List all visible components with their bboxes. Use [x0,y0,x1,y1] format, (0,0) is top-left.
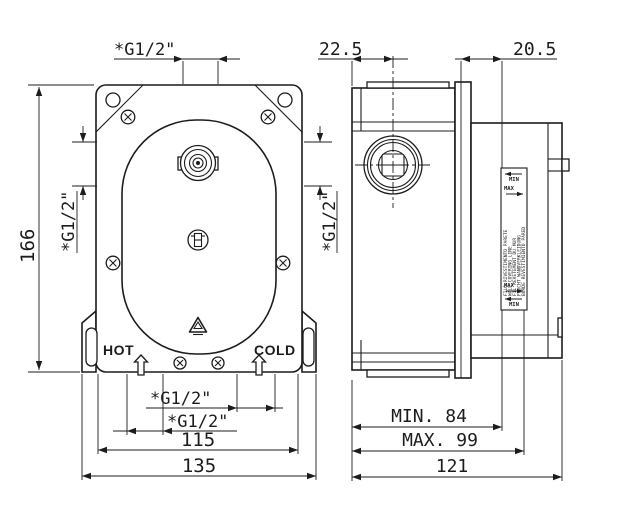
mounting-hole-left [106,93,120,107]
side-view: MIN MAX FILO RIVESTIMENTO PARETE WALL CO… [318,39,569,481]
dim-top-port: *G1/2" [114,40,240,84]
front-view: HOT COLD *G1/2" 166 [17,40,340,480]
dim-right-port: *G1/2" [304,126,340,253]
label-plate: MIN MAX FILO RIVESTIMENTO PARETE WALL CO… [501,168,527,310]
slot-right [303,328,314,366]
total-depth-label: 121 [436,456,469,477]
inner-width-label: 115 [181,429,215,451]
housing-box [352,82,455,377]
label-top-max: MAX [504,186,515,192]
top-port-label: *G1/2" [114,40,175,60]
outer-width-label: 135 [182,455,216,477]
mounting-hole-right [278,93,292,107]
screw-icon [261,110,275,124]
label-bottom-max: MAX [504,283,515,289]
label-top-min: MIN [509,177,519,183]
adjuster-screw [188,230,208,250]
dim-bottom-port-1: *G1/2" [146,374,283,412]
housing-bottom-tab [367,370,449,377]
slot-left [86,328,97,366]
min-depth-label: MIN. 84 [391,406,467,427]
dim-left-port: *G1/2" [59,126,97,253]
plate-depth-label: 20.5 [513,39,556,60]
screw-icon [212,357,224,369]
screw-icon [276,256,290,270]
label-bottom-min: MIN [509,302,519,308]
right-port-label: *G1/2" [320,191,340,252]
left-port-label: *G1/2" [59,191,79,252]
side-notch [558,318,562,337]
screw-icon [121,110,135,124]
dim-top-offset: 22.5 [318,39,408,86]
spindle-stub [562,159,569,171]
hot-label: HOT [103,342,134,358]
screw-icon [106,256,120,270]
svg-text:BORDE REVESTIMIENTO PARED: BORDE REVESTIMIENTO PARED [521,227,527,296]
screw-icon [174,357,186,369]
top-offset-label: 22.5 [319,39,362,60]
bottom-port-label-1: *G1/2" [150,389,211,409]
height-dim-label: 166 [17,229,39,263]
technical-drawing: HOT COLD *G1/2" 166 [0,0,628,526]
max-depth-label: MAX. 99 [402,430,478,451]
housing-top-tab [367,82,449,88]
wall-flange [455,61,471,378]
